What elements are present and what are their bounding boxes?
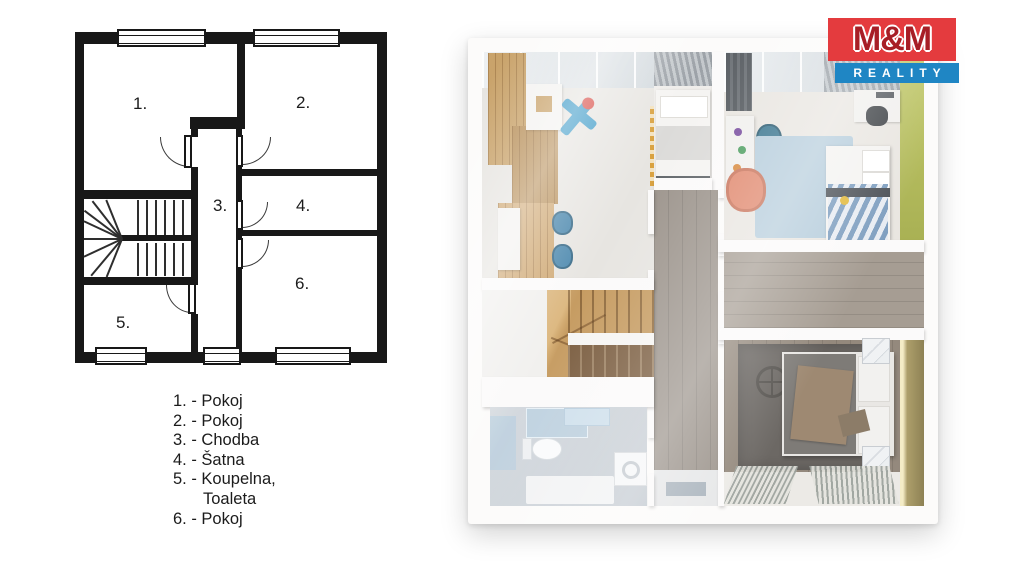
wall	[236, 267, 242, 352]
logo-mm-text: M&M	[853, 20, 931, 59]
window	[275, 347, 351, 365]
washer-door	[622, 461, 640, 479]
curtain	[724, 466, 798, 504]
stair-treads	[137, 200, 191, 235]
stairs-3d	[547, 290, 654, 377]
stair-landing	[482, 290, 547, 377]
wall	[75, 32, 84, 363]
room-legend: 1. - Pokoj 2. - Pokoj 3. - Chodba 4. - Š…	[173, 392, 343, 529]
room-label-6: 6.	[295, 274, 309, 294]
wardrobe-dark	[726, 53, 752, 111]
accent-wall-olive	[900, 340, 924, 506]
door-leaf	[184, 135, 192, 168]
wall	[482, 278, 654, 290]
window	[117, 29, 206, 47]
room-closet-floor	[724, 252, 924, 328]
logo-mm-box: M&M	[828, 18, 956, 61]
wall	[239, 169, 377, 176]
blanket	[656, 126, 710, 160]
wall	[712, 52, 724, 190]
wall	[237, 32, 245, 122]
bean-chair-coral	[726, 168, 766, 212]
door-leaf	[236, 238, 243, 269]
legend-item: 1. - Pokoj	[173, 392, 343, 412]
legend-item: 6. - Pokoj	[173, 510, 343, 530]
curtain	[654, 52, 712, 86]
legend-item: 3. - Chodba	[173, 431, 343, 451]
wall	[377, 32, 387, 363]
desk	[498, 208, 520, 270]
door-leaf	[236, 200, 243, 230]
corridor-floor	[654, 190, 718, 506]
sink-cabinet	[564, 408, 610, 426]
legend-item: Toaleta	[173, 490, 343, 510]
stairs	[84, 199, 191, 277]
office-chair-dark	[866, 106, 888, 126]
stair-treads-upper	[568, 290, 654, 333]
wall	[654, 178, 712, 190]
toilet	[532, 438, 562, 460]
wall	[482, 377, 654, 407]
stair-treads-lower	[568, 345, 654, 377]
cabinet-inset	[536, 96, 552, 112]
real-estate-floorplan-page: 1. 2. 3. 4. 5. 6. 1. - Pokoj 2. - Pokoj …	[0, 0, 1024, 576]
wall	[718, 328, 924, 340]
room-label-1: 1.	[133, 94, 147, 114]
floor-plan-2d: 1. 2. 3. 4. 5. 6.	[75, 32, 387, 363]
wall	[648, 190, 654, 234]
desk-chair	[552, 244, 573, 269]
window	[253, 29, 340, 47]
stair-landing-edge	[120, 235, 191, 241]
bed-kids	[656, 90, 710, 186]
shower-panel	[490, 416, 516, 470]
curtain	[809, 466, 898, 504]
room-label-2: 2.	[296, 93, 310, 113]
pillow	[862, 150, 890, 172]
pillow	[660, 96, 708, 118]
washing-machine	[614, 452, 647, 486]
stair-treads	[137, 243, 191, 276]
wall	[84, 277, 196, 285]
wall	[84, 190, 196, 199]
window	[203, 347, 241, 365]
desk-chair	[552, 211, 573, 235]
window	[95, 347, 147, 365]
bath-mat	[526, 476, 614, 504]
door-leaf	[188, 283, 196, 314]
wall	[191, 129, 198, 137]
room-label-4: 4.	[296, 196, 310, 216]
door-leaf	[236, 135, 243, 167]
toy	[738, 146, 746, 154]
wall	[718, 240, 924, 252]
nightstand	[862, 338, 890, 364]
legend-item: 2. - Pokoj	[173, 412, 343, 432]
wall	[648, 474, 654, 506]
legend-item: 5. - Koupelna,	[173, 470, 343, 490]
bunk-ladder	[650, 106, 654, 186]
door-mat	[666, 482, 706, 496]
monitor	[876, 92, 894, 98]
toy	[734, 128, 742, 136]
toy	[840, 196, 849, 205]
door-arc	[242, 137, 271, 165]
door-arc	[242, 202, 268, 228]
floor-plan-3d	[468, 38, 938, 524]
room-label-3: 3.	[213, 196, 227, 216]
logo-reality-text: REALITY	[847, 66, 946, 80]
room-label-5: 5.	[116, 313, 130, 333]
door-arc	[242, 240, 269, 267]
bed-teen	[826, 146, 890, 240]
stair-landing-mid	[568, 333, 654, 345]
wall	[191, 314, 198, 352]
mm-reality-logo: M&M REALITY	[826, 17, 960, 83]
bed-master	[782, 352, 894, 456]
toilet-tank	[522, 438, 532, 460]
wardrobe	[512, 126, 558, 204]
wall	[191, 167, 198, 285]
logo-reality-bar: REALITY	[835, 63, 959, 83]
wall	[239, 230, 377, 236]
bed-strap	[826, 188, 890, 197]
legend-item: 4. - Šatna	[173, 451, 343, 471]
